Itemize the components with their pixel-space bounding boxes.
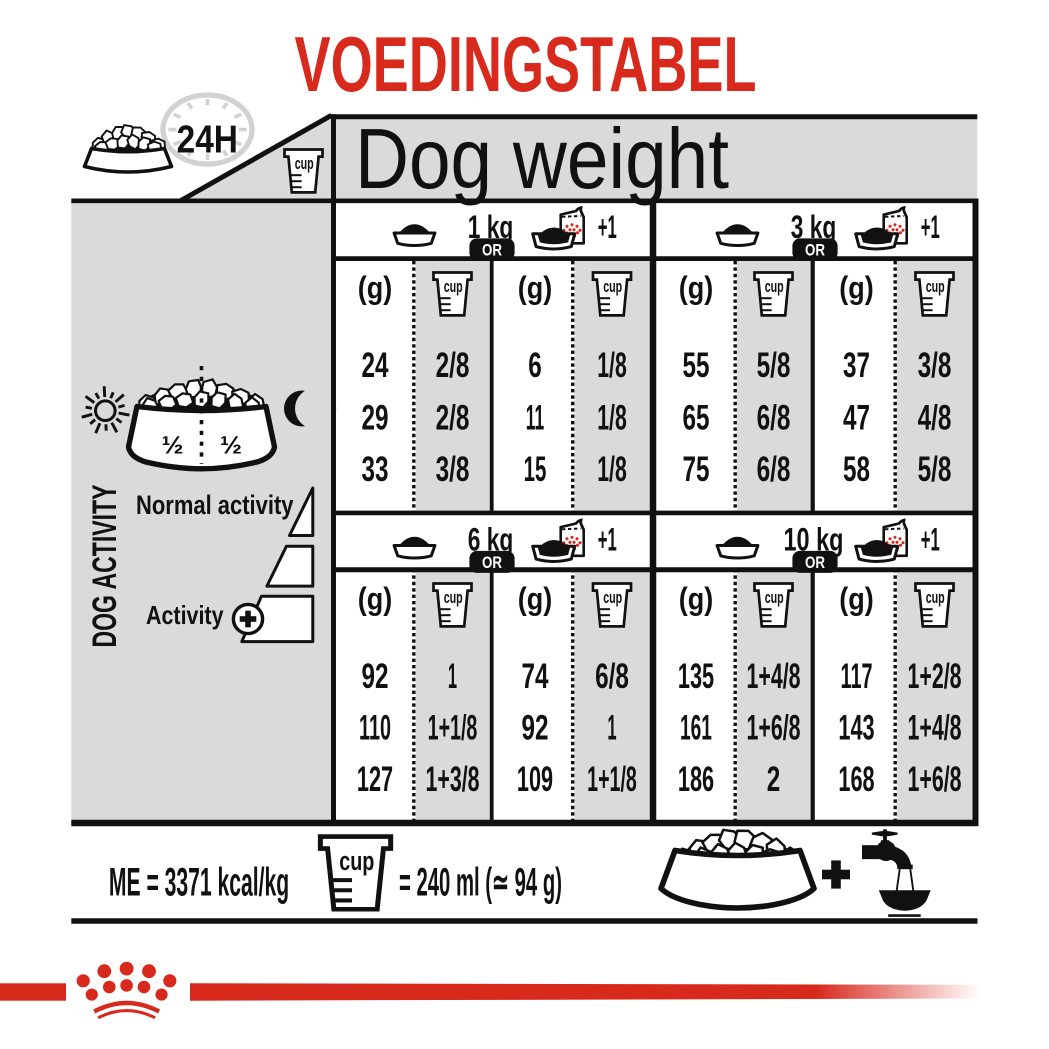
svg-text:cup: cup [765, 278, 784, 296]
svg-text:OR: OR [482, 554, 502, 572]
svg-text:58: 58 [843, 450, 870, 489]
svg-text:143: 143 [838, 709, 874, 748]
svg-text:1+1/8: 1+1/8 [428, 709, 478, 748]
svg-text:135: 135 [678, 657, 714, 696]
svg-text:117: 117 [841, 657, 873, 696]
svg-text:47: 47 [843, 398, 870, 437]
svg-text:1+6/8: 1+6/8 [908, 760, 962, 799]
svg-text:cup: cup [444, 278, 463, 296]
svg-text:1+6/8: 1+6/8 [747, 709, 801, 748]
svg-text:cup: cup [926, 278, 945, 296]
svg-text:6/8: 6/8 [757, 398, 791, 437]
svg-text:2/8: 2/8 [436, 398, 470, 437]
svg-text:1/8: 1/8 [597, 346, 627, 385]
svg-text:1+1/8: 1+1/8 [587, 760, 637, 799]
svg-text:24: 24 [362, 346, 389, 385]
svg-text:Activity: Activity [146, 600, 224, 630]
svg-text:3/8: 3/8 [918, 346, 952, 385]
svg-text:(g): (g) [679, 269, 714, 305]
svg-text:92: 92 [522, 709, 549, 748]
svg-text:127: 127 [357, 760, 393, 799]
svg-text:161: 161 [680, 709, 712, 748]
svg-text:OR: OR [482, 241, 502, 259]
svg-text:(g): (g) [839, 269, 874, 305]
svg-text:1+4/8: 1+4/8 [747, 657, 801, 696]
svg-text:OR: OR [805, 241, 825, 259]
svg-text:1/8: 1/8 [597, 398, 627, 437]
svg-text:6/8: 6/8 [595, 657, 629, 696]
svg-text:VOEDINGSTABEL: VOEDINGSTABEL [295, 20, 757, 108]
svg-text:11: 11 [526, 398, 544, 437]
svg-text:2: 2 [767, 760, 781, 799]
svg-text:(g): (g) [839, 581, 874, 617]
svg-text:186: 186 [678, 760, 714, 799]
svg-text:(g): (g) [679, 581, 714, 617]
svg-text:110: 110 [359, 709, 391, 748]
svg-text:5/8: 5/8 [918, 450, 952, 489]
svg-text:6: 6 [528, 346, 542, 385]
svg-text:½: ½ [162, 432, 184, 460]
svg-text:cup: cup [339, 846, 374, 877]
svg-text:5/8: 5/8 [757, 346, 791, 385]
svg-text:Normal activity: Normal activity [136, 490, 294, 520]
svg-text:1+3/8: 1+3/8 [426, 760, 480, 799]
svg-text:29: 29 [362, 398, 389, 437]
svg-text:DOG ACTIVITY: DOG ACTIVITY [86, 484, 124, 647]
svg-text:55: 55 [683, 346, 710, 385]
svg-text:74: 74 [522, 657, 549, 696]
svg-text:1: 1 [448, 657, 457, 696]
svg-text:1: 1 [607, 709, 616, 748]
svg-text:(g): (g) [518, 269, 553, 305]
svg-text:+1: +1 [921, 209, 940, 245]
svg-text:1+4/8: 1+4/8 [908, 709, 962, 748]
svg-text:cup: cup [603, 278, 622, 296]
svg-text:(g): (g) [518, 581, 553, 617]
svg-text:75: 75 [683, 450, 710, 489]
svg-text:OR: OR [805, 554, 825, 572]
svg-text:cup: cup [926, 589, 945, 607]
svg-text:Dog weight: Dog weight [355, 112, 729, 207]
svg-text:(g): (g) [358, 269, 393, 305]
svg-text:½: ½ [220, 432, 242, 460]
svg-text:ME = 3371 kcal/kg: ME = 3371 kcal/kg [109, 861, 289, 905]
svg-text:= 240 ml (≃ 94 g): = 240 ml (≃ 94 g) [399, 861, 562, 905]
svg-text:24H: 24H [177, 119, 238, 162]
svg-text:+1: +1 [598, 209, 617, 245]
svg-text:4/8: 4/8 [918, 398, 952, 437]
svg-text:109: 109 [517, 760, 553, 799]
svg-text:cup: cup [295, 155, 314, 173]
svg-text:+1: +1 [598, 522, 617, 558]
svg-text:15: 15 [524, 450, 547, 489]
svg-text:37: 37 [843, 346, 870, 385]
svg-text:65: 65 [683, 398, 710, 437]
svg-text:(g): (g) [358, 581, 393, 617]
svg-text:33: 33 [362, 450, 389, 489]
svg-text:cup: cup [765, 589, 784, 607]
svg-text:2/8: 2/8 [436, 346, 470, 385]
svg-text:3/8: 3/8 [436, 450, 470, 489]
svg-text:1/8: 1/8 [597, 450, 627, 489]
svg-text:168: 168 [838, 760, 874, 799]
svg-text:+1: +1 [921, 522, 940, 558]
svg-text:92: 92 [362, 657, 389, 696]
svg-text:cup: cup [444, 589, 463, 607]
svg-text:cup: cup [603, 589, 622, 607]
svg-text:6/8: 6/8 [757, 450, 791, 489]
svg-text:1+2/8: 1+2/8 [908, 657, 962, 696]
